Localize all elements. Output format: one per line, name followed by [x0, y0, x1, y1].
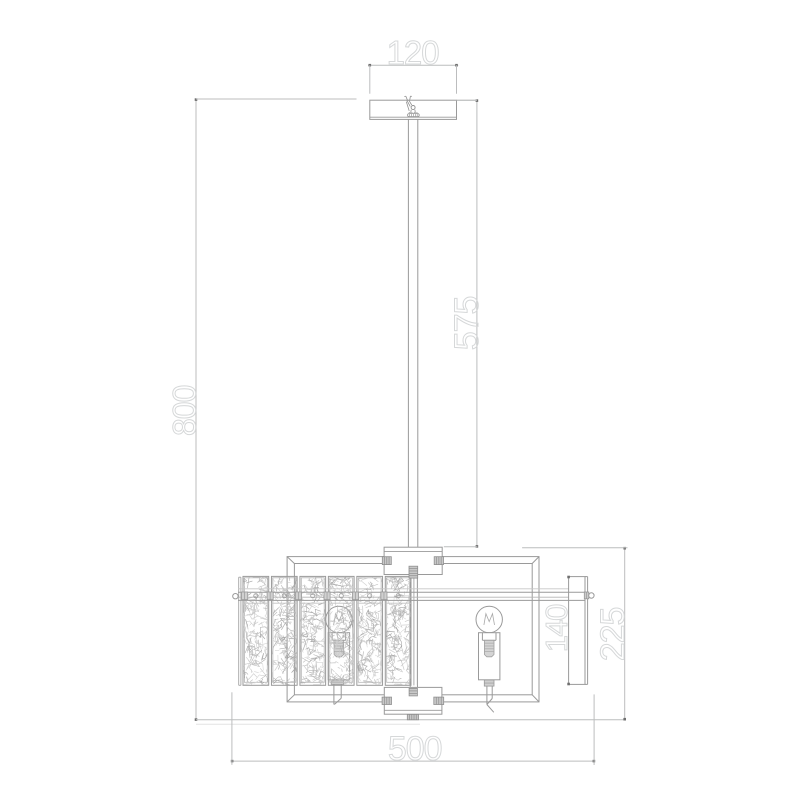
- svg-text:500: 500: [388, 730, 442, 768]
- svg-text:800: 800: [167, 385, 203, 436]
- svg-text:575: 575: [448, 296, 486, 350]
- svg-text:225: 225: [594, 607, 632, 661]
